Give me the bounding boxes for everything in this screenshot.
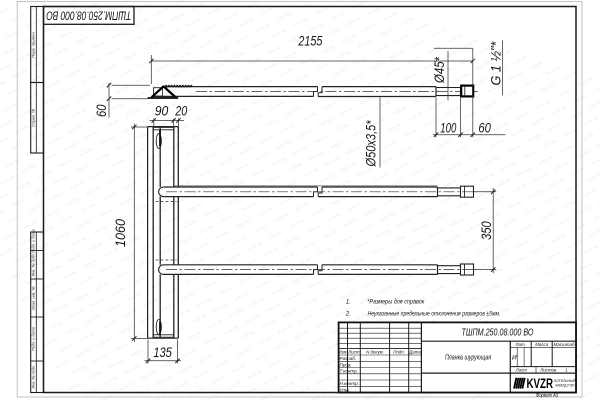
svg-text:Пров.: Пров. <box>340 362 352 367</box>
svg-text:Подп. и дата: Подп. и дата <box>32 229 36 253</box>
svg-text:Н.контр.: Н.контр. <box>340 381 359 386</box>
svg-text:1.: 1. <box>346 299 351 306</box>
svg-text:Разраб.: Разраб. <box>340 356 357 361</box>
svg-text:ЗАВОД РЭП: ЗАВОД РЭП <box>555 384 575 388</box>
svg-text:Т.контр.: Т.контр. <box>340 369 359 374</box>
svg-text:Дата: Дата <box>408 349 421 354</box>
svg-text:1060: 1060 <box>112 219 128 247</box>
svg-text:2.: 2. <box>345 311 351 318</box>
svg-text:60: 60 <box>93 104 109 117</box>
svg-text:KVZR: KVZR <box>527 376 554 391</box>
svg-text:Лист: Лист <box>347 349 360 354</box>
svg-text:N докум.: N докум. <box>366 349 384 354</box>
svg-text:Масштаб: Масштаб <box>554 342 576 347</box>
svg-text:Подп.: Подп. <box>393 349 405 354</box>
svg-text:2155: 2155 <box>298 33 323 49</box>
svg-text:Ø45*: Ø45* <box>431 57 447 84</box>
svg-text:Изм.: Изм. <box>338 349 347 354</box>
svg-text:G 1 ½"*: G 1 ½"* <box>488 41 504 85</box>
svg-text:90: 90 <box>155 103 169 119</box>
svg-text:Инв. № подл.: Инв. № подл. <box>32 365 36 389</box>
svg-text:Подп. и дата: Подп. и дата <box>32 327 36 351</box>
svg-text:Лит.: Лит. <box>515 342 526 347</box>
svg-text:Утв.: Утв. <box>340 387 350 392</box>
svg-text:*Размеры для справок: *Размеры для справок <box>367 298 425 306</box>
svg-text:60: 60 <box>478 119 491 135</box>
svg-text:Листов: Листов <box>539 367 557 372</box>
svg-text:Ø50х3,5*: Ø50х3,5* <box>363 120 379 167</box>
svg-text:135: 135 <box>153 344 172 360</box>
svg-text:Масса: Масса <box>535 342 549 347</box>
svg-text:И: И <box>512 355 517 362</box>
svg-text:350: 350 <box>478 221 494 240</box>
svg-text:Перв. примен.: Перв. примен. <box>31 31 36 58</box>
svg-text:КОТЕЛЬНЫЙ: КОТЕЛЬНЫЙ <box>554 379 576 383</box>
svg-text:Инв. № дубл.: Инв. № дубл. <box>32 253 36 276</box>
svg-text:Взам. инв. №: Взам. инв. № <box>32 286 36 309</box>
svg-text:Справ. №: Справ. № <box>31 108 36 127</box>
svg-text:ТШПМ.250.08.000 ВО: ТШПМ.250.08.000 ВО <box>462 328 534 339</box>
svg-text:Лист: Лист <box>515 367 528 372</box>
svg-text:Планка шурующая: Планка шурующая <box>445 355 491 362</box>
svg-text:Неуказанные предельные отклоне: Неуказанные предельные отклонения размер… <box>368 310 501 318</box>
svg-text:Формат А3: Формат А3 <box>536 393 558 399</box>
svg-text:20: 20 <box>174 103 187 119</box>
svg-text:100: 100 <box>440 119 456 135</box>
svg-text:ТШПМ.250.08.000 ВО: ТШПМ.250.08.000 ВО <box>46 8 131 20</box>
